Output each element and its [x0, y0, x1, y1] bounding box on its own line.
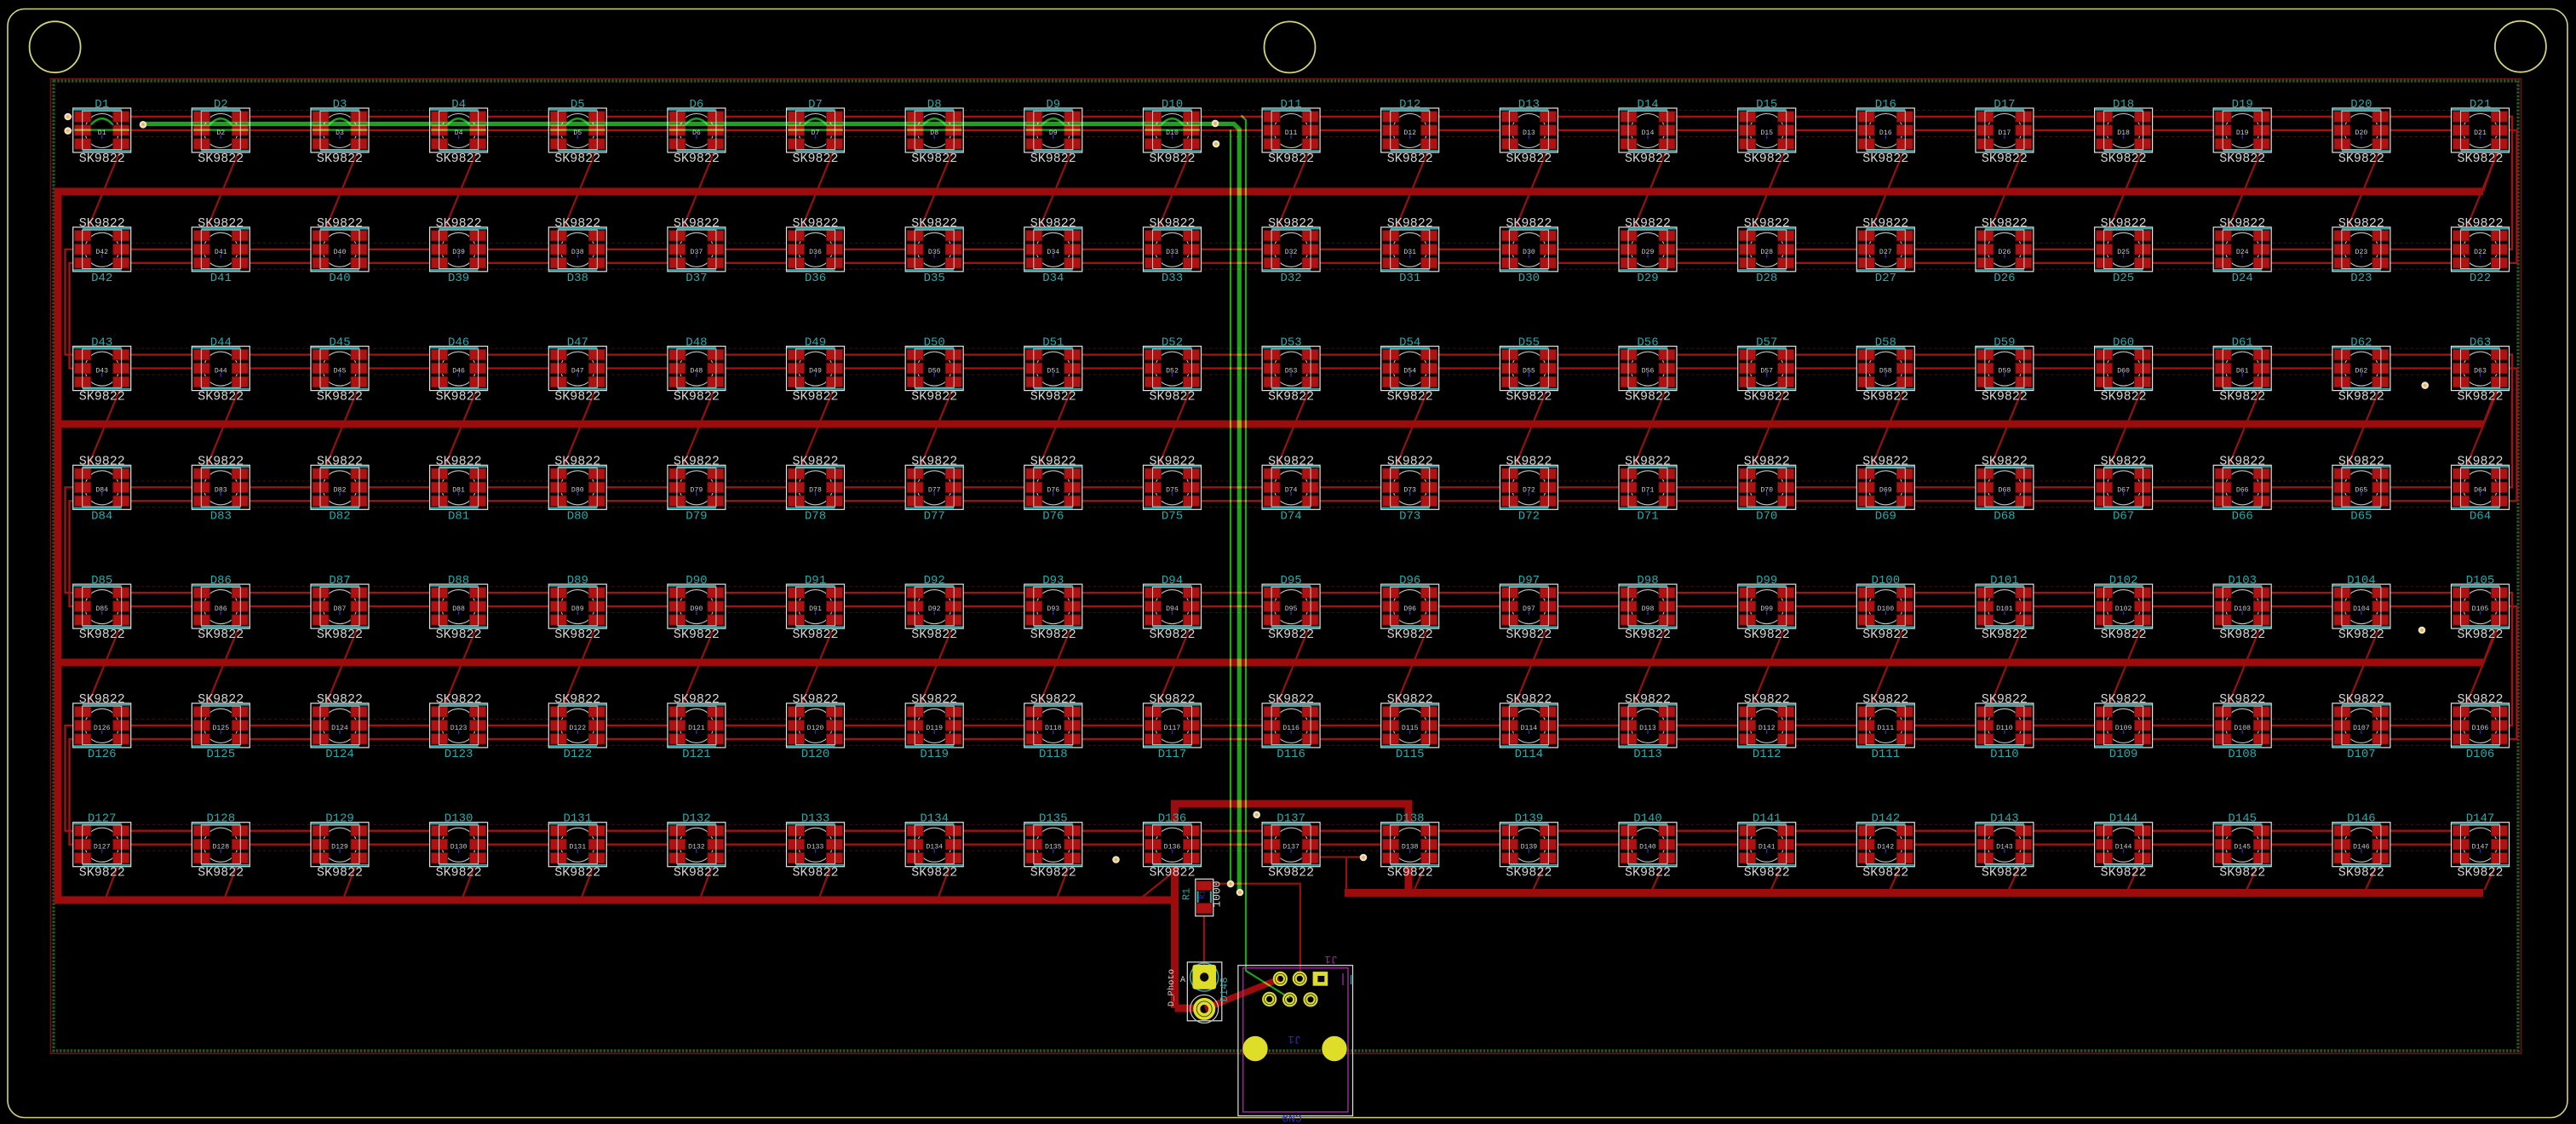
svg-text:D103: D103: [2228, 574, 2257, 588]
svg-text:SK9822: SK9822: [2101, 866, 2147, 880]
svg-text:SK9822: SK9822: [436, 628, 482, 642]
svg-text:D90: D90: [686, 574, 707, 588]
svg-text:SK9822: SK9822: [792, 454, 838, 468]
svg-text:D120: D120: [801, 748, 830, 761]
svg-text:D10: D10: [1162, 98, 1183, 112]
svg-text:D146: D146: [2347, 812, 2376, 826]
svg-text:SK9822: SK9822: [1149, 866, 1195, 880]
svg-text:SK9822: SK9822: [198, 390, 244, 404]
svg-text:D37: D37: [686, 272, 707, 285]
svg-text:D31: D31: [1399, 272, 1420, 285]
svg-text:D125: D125: [206, 748, 235, 761]
svg-text:D124: D124: [325, 748, 354, 761]
svg-text:D74: D74: [1280, 509, 1301, 523]
svg-text:SK9822: SK9822: [674, 628, 720, 642]
svg-text:D58: D58: [1875, 336, 1896, 350]
svg-text:SK9822: SK9822: [1149, 152, 1195, 166]
svg-text:SK9822: SK9822: [2338, 866, 2384, 880]
svg-text:SK9822: SK9822: [436, 390, 482, 404]
svg-text:SK9822: SK9822: [79, 454, 125, 468]
svg-text:D28: D28: [1756, 272, 1777, 285]
svg-text:SK9822: SK9822: [198, 866, 244, 880]
svg-text:SK9822: SK9822: [436, 216, 482, 231]
svg-text:SK9822: SK9822: [1030, 628, 1076, 642]
svg-text:SK9822: SK9822: [1387, 390, 1433, 404]
svg-text:D148: D148: [1219, 978, 1231, 1002]
svg-text:SK9822: SK9822: [1625, 628, 1671, 642]
svg-text:D86: D86: [210, 574, 232, 588]
svg-text:D107: D107: [2347, 748, 2376, 761]
svg-text:D112: D112: [1753, 748, 1781, 761]
svg-text:SK9822: SK9822: [1387, 152, 1433, 166]
svg-text:D87: D87: [329, 574, 350, 588]
svg-text:D80: D80: [567, 509, 588, 523]
svg-text:D83: D83: [210, 509, 232, 523]
svg-text:D132: D132: [682, 812, 711, 826]
svg-text:D59: D59: [1994, 336, 2015, 350]
svg-text:D144: D144: [2109, 812, 2138, 826]
svg-text:CN9: CN9: [1282, 1111, 1301, 1124]
svg-text:A: A: [1180, 976, 1185, 985]
svg-text:SK9822: SK9822: [317, 152, 363, 166]
svg-text:D49: D49: [805, 336, 826, 350]
svg-text:SK9822: SK9822: [1268, 390, 1314, 404]
svg-text:SK9822: SK9822: [1862, 692, 1908, 707]
svg-text:SK9822: SK9822: [2457, 216, 2503, 231]
svg-text:D101: D101: [1990, 574, 2019, 588]
svg-text:SK9822: SK9822: [792, 692, 838, 707]
svg-text:D61: D61: [2232, 336, 2253, 350]
svg-text:SK9822: SK9822: [1744, 152, 1790, 166]
svg-text:SK9822: SK9822: [792, 152, 838, 166]
svg-text:SK9822: SK9822: [317, 216, 363, 231]
svg-text:D140: D140: [1633, 812, 1662, 826]
svg-text:SK9822: SK9822: [2338, 454, 2384, 468]
svg-text:SK9822: SK9822: [2101, 692, 2147, 707]
svg-text:SK9822: SK9822: [2457, 628, 2503, 642]
svg-text:SK9822: SK9822: [1268, 866, 1314, 880]
svg-text:D54: D54: [1399, 336, 1420, 350]
svg-text:SK9822: SK9822: [1030, 692, 1076, 707]
svg-text:D3: D3: [333, 98, 347, 112]
svg-text:SK9822: SK9822: [911, 454, 957, 468]
svg-text:SK9822: SK9822: [1149, 216, 1195, 231]
svg-text:SK9822: SK9822: [317, 628, 363, 642]
svg-text:D119: D119: [920, 748, 949, 761]
svg-text:SK9822: SK9822: [792, 628, 838, 642]
svg-text:SK9822: SK9822: [1268, 216, 1314, 231]
svg-text:D121: D121: [682, 748, 711, 761]
svg-text:D19: D19: [2232, 98, 2253, 112]
svg-text:SK9822: SK9822: [911, 216, 957, 231]
svg-text:SK9822: SK9822: [436, 866, 482, 880]
svg-text:SK9822: SK9822: [674, 866, 720, 880]
svg-text:D27: D27: [1875, 272, 1896, 285]
svg-text:SK9822: SK9822: [2457, 866, 2503, 880]
svg-text:D127: D127: [88, 812, 117, 826]
svg-text:SK9822: SK9822: [1625, 454, 1671, 468]
svg-text:SK9822: SK9822: [1268, 628, 1314, 642]
svg-text:D51: D51: [1042, 336, 1064, 350]
svg-text:D134: D134: [920, 812, 949, 826]
svg-text:D7: D7: [808, 98, 823, 112]
svg-text:SK9822: SK9822: [436, 692, 482, 707]
svg-text:D117: D117: [1158, 748, 1187, 761]
svg-text:SK9822: SK9822: [1982, 454, 2028, 468]
svg-text:D78: D78: [805, 509, 826, 523]
svg-text:D53: D53: [1280, 336, 1301, 350]
svg-text:SK9822: SK9822: [1506, 216, 1552, 231]
svg-text:SK9822: SK9822: [674, 390, 720, 404]
svg-text:D1: D1: [95, 98, 109, 112]
svg-text:D135: D135: [1039, 812, 1068, 826]
svg-text:D139: D139: [1515, 812, 1544, 826]
svg-text:D25: D25: [2113, 272, 2134, 285]
svg-text:D60: D60: [2113, 336, 2134, 350]
svg-text:SK9822: SK9822: [674, 216, 720, 231]
svg-text:SK9822: SK9822: [2457, 454, 2503, 468]
svg-text:SK9822: SK9822: [674, 152, 720, 166]
svg-text:D96: D96: [1399, 574, 1420, 588]
svg-text:D99: D99: [1756, 574, 1777, 588]
svg-text:SK9822: SK9822: [2101, 152, 2147, 166]
svg-text:SK9822: SK9822: [1030, 390, 1076, 404]
svg-text:SK9822: SK9822: [1387, 216, 1433, 231]
svg-text:SK9822: SK9822: [1982, 692, 2028, 707]
svg-text:SK9822: SK9822: [79, 628, 125, 642]
svg-text:D141: D141: [1753, 812, 1781, 826]
svg-text:SK9822: SK9822: [1862, 628, 1908, 642]
svg-text:D20: D20: [2350, 98, 2372, 112]
svg-text:D137: D137: [1277, 812, 1305, 826]
svg-text:SK9822: SK9822: [792, 216, 838, 231]
svg-text:R1: R1: [1181, 888, 1193, 900]
svg-text:SK9822: SK9822: [554, 628, 600, 642]
svg-text:D129: D129: [325, 812, 354, 826]
svg-text:D36: D36: [805, 272, 826, 285]
svg-text:SK9822: SK9822: [911, 628, 957, 642]
svg-text:SK9822: SK9822: [2101, 628, 2147, 642]
svg-text:D108: D108: [2228, 748, 2257, 761]
svg-text:SK9822: SK9822: [554, 216, 600, 231]
svg-text:D13: D13: [1518, 98, 1540, 112]
svg-text:SK9822: SK9822: [198, 692, 244, 707]
svg-text:D63: D63: [2470, 336, 2491, 350]
svg-text:D21: D21: [2470, 98, 2491, 112]
svg-text:SK9822: SK9822: [1268, 692, 1314, 707]
svg-text:D24: D24: [2232, 272, 2253, 285]
svg-text:D126: D126: [88, 748, 117, 761]
svg-text:SK9822: SK9822: [1149, 628, 1195, 642]
svg-text:SK9822: SK9822: [911, 692, 957, 707]
svg-text:SK9822: SK9822: [2338, 152, 2384, 166]
svg-text:D105: D105: [2466, 574, 2495, 588]
svg-text:D113: D113: [1633, 748, 1662, 761]
svg-text:SK9822: SK9822: [911, 866, 957, 880]
svg-text:D65: D65: [2350, 509, 2372, 523]
svg-text:SK9822: SK9822: [792, 390, 838, 404]
svg-text:D41: D41: [210, 272, 232, 285]
svg-text:SK9822: SK9822: [79, 390, 125, 404]
svg-text:SK9822: SK9822: [1506, 866, 1552, 880]
svg-text:D111: D111: [1871, 748, 1900, 761]
svg-text:SK9822: SK9822: [79, 692, 125, 707]
svg-text:SK9822: SK9822: [2457, 692, 2503, 707]
svg-text:D64: D64: [2470, 509, 2491, 523]
svg-text:SK9822: SK9822: [1149, 390, 1195, 404]
svg-text:SK9822: SK9822: [2219, 390, 2265, 404]
svg-text:SK9822: SK9822: [1149, 454, 1195, 468]
svg-text:D8: D8: [927, 98, 942, 112]
svg-text:J1: J1: [1324, 953, 1338, 966]
svg-text:D38: D38: [567, 272, 588, 285]
svg-text:D133: D133: [801, 812, 830, 826]
svg-text:SK9822: SK9822: [1862, 390, 1908, 404]
svg-text:D9: D9: [1046, 98, 1060, 112]
svg-text:SK9822: SK9822: [2219, 454, 2265, 468]
svg-text:D136: D136: [1158, 812, 1187, 826]
svg-text:SK9822: SK9822: [554, 866, 600, 880]
svg-text:SK9822: SK9822: [317, 866, 363, 880]
svg-text:D47: D47: [567, 336, 588, 350]
svg-text:R1: R1: [1199, 890, 1208, 899]
svg-text:SK9822: SK9822: [1506, 152, 1552, 166]
svg-text:SK9822: SK9822: [436, 152, 482, 166]
svg-text:D88: D88: [448, 574, 469, 588]
svg-text:D26: D26: [1994, 272, 2015, 285]
svg-text:D32: D32: [1280, 272, 1301, 285]
svg-text:D30: D30: [1518, 272, 1540, 285]
svg-text:SK9822: SK9822: [1030, 454, 1076, 468]
svg-text:D95: D95: [1280, 574, 1301, 588]
svg-text:SK9822: SK9822: [1862, 866, 1908, 880]
svg-text:SK9822: SK9822: [1862, 216, 1908, 231]
svg-text:D23: D23: [2350, 272, 2372, 285]
svg-text:SK9822: SK9822: [198, 454, 244, 468]
svg-text:D4: D4: [451, 98, 466, 112]
svg-text:D57: D57: [1756, 336, 1777, 350]
svg-text:D93: D93: [1042, 574, 1064, 588]
svg-text:D18: D18: [2113, 98, 2134, 112]
svg-text:SK9822: SK9822: [1744, 216, 1790, 231]
svg-text:SK9822: SK9822: [1030, 216, 1076, 231]
svg-text:SK9822: SK9822: [1862, 454, 1908, 468]
svg-text:SK9822: SK9822: [1982, 390, 2028, 404]
svg-text:SK9822: SK9822: [1982, 216, 2028, 231]
svg-text:SK9822: SK9822: [1268, 454, 1314, 468]
svg-text:D94: D94: [1162, 574, 1183, 588]
svg-text:SK9822: SK9822: [198, 152, 244, 166]
svg-text:SK9822: SK9822: [554, 152, 600, 166]
svg-text:D142: D142: [1871, 812, 1900, 826]
svg-text:SK9822: SK9822: [911, 390, 957, 404]
svg-text:SK9822: SK9822: [317, 454, 363, 468]
svg-text:SK9822: SK9822: [1744, 866, 1790, 880]
svg-text:D123: D123: [445, 748, 473, 761]
svg-text:SK9822: SK9822: [2101, 216, 2147, 231]
svg-text:SK9822: SK9822: [674, 454, 720, 468]
svg-text:D12: D12: [1399, 98, 1420, 112]
svg-text:SK9822: SK9822: [554, 390, 600, 404]
svg-text:D128: D128: [206, 812, 235, 826]
svg-text:D89: D89: [567, 574, 588, 588]
svg-text:SK9822: SK9822: [2338, 216, 2384, 231]
svg-text:SK9822: SK9822: [1387, 866, 1433, 880]
svg-text:SK9822: SK9822: [2338, 692, 2384, 707]
svg-text:D16: D16: [1875, 98, 1896, 112]
svg-text:SK9822: SK9822: [2101, 454, 2147, 468]
svg-text:SK9822: SK9822: [792, 866, 838, 880]
svg-text:D39: D39: [448, 272, 469, 285]
svg-text:D43: D43: [91, 336, 112, 350]
svg-text:D42: D42: [91, 272, 112, 285]
svg-text:D69: D69: [1875, 509, 1896, 523]
svg-text:D6: D6: [689, 98, 703, 112]
svg-text:D70: D70: [1756, 509, 1777, 523]
svg-text:SK9822: SK9822: [1625, 866, 1671, 880]
svg-text:SK9822: SK9822: [1744, 390, 1790, 404]
svg-text:D35: D35: [924, 272, 945, 285]
svg-text:SK9822: SK9822: [2219, 866, 2265, 880]
svg-text:D17: D17: [1994, 98, 2015, 112]
svg-text:SK9822: SK9822: [1982, 628, 2028, 642]
svg-text:SK9822: SK9822: [1387, 454, 1433, 468]
svg-text:D118: D118: [1039, 748, 1068, 761]
svg-text:SK9822: SK9822: [2219, 216, 2265, 231]
svg-text:SK9822: SK9822: [1744, 692, 1790, 707]
svg-text:D75: D75: [1162, 509, 1183, 523]
svg-text:SK9822: SK9822: [674, 692, 720, 707]
svg-text:D116: D116: [1277, 748, 1305, 761]
svg-text:D122: D122: [563, 748, 592, 761]
svg-text:SK9822: SK9822: [1506, 454, 1552, 468]
svg-text:D14: D14: [1637, 98, 1658, 112]
svg-text:D102: D102: [2109, 574, 2138, 588]
svg-text:SK9822: SK9822: [317, 692, 363, 707]
svg-text:D62: D62: [2350, 336, 2372, 350]
svg-text:D106: D106: [2466, 748, 2495, 761]
svg-text:SK9822: SK9822: [1625, 216, 1671, 231]
svg-text:D84: D84: [91, 509, 112, 523]
svg-text:D100: D100: [1871, 574, 1900, 588]
svg-text:SK9822: SK9822: [436, 454, 482, 468]
svg-text:SK9822: SK9822: [1506, 390, 1552, 404]
svg-text:SK9822: SK9822: [198, 628, 244, 642]
svg-text:SK9822: SK9822: [79, 866, 125, 880]
svg-text:D109: D109: [2109, 748, 2138, 761]
svg-text:D145: D145: [2228, 812, 2257, 826]
svg-text:SK9822: SK9822: [2219, 152, 2265, 166]
svg-text:SK9822: SK9822: [2338, 628, 2384, 642]
svg-text:SK9822: SK9822: [1030, 152, 1076, 166]
svg-text:D_Photo: D_Photo: [1167, 969, 1177, 1006]
svg-text:SK9822: SK9822: [1387, 692, 1433, 707]
svg-text:D147: D147: [2466, 812, 2495, 826]
svg-text:D138: D138: [1396, 812, 1425, 826]
svg-text:J1: J1: [1288, 1033, 1301, 1046]
svg-text:SK9822: SK9822: [1625, 692, 1671, 707]
svg-text:D72: D72: [1518, 509, 1540, 523]
svg-text:D29: D29: [1637, 272, 1658, 285]
svg-text:SK9822: SK9822: [554, 692, 600, 707]
svg-text:D55: D55: [1518, 336, 1540, 350]
svg-text:SK9822: SK9822: [1506, 628, 1552, 642]
svg-text:D104: D104: [2347, 574, 2376, 588]
svg-text:1000: 1000: [1211, 880, 1224, 907]
svg-text:D130: D130: [445, 812, 473, 826]
svg-text:D92: D92: [924, 574, 945, 588]
svg-text:D79: D79: [686, 509, 707, 523]
svg-text:SK9822: SK9822: [2219, 628, 2265, 642]
svg-text:D67: D67: [2113, 509, 2134, 523]
svg-text:D68: D68: [1994, 509, 2015, 523]
svg-text:SK9822: SK9822: [1744, 454, 1790, 468]
svg-text:D34: D34: [1042, 272, 1064, 285]
svg-text:SK9822: SK9822: [79, 152, 125, 166]
svg-text:D81: D81: [448, 509, 469, 523]
svg-text:SK9822: SK9822: [1982, 152, 2028, 166]
svg-text:D115: D115: [1396, 748, 1425, 761]
svg-text:SK9822: SK9822: [1268, 152, 1314, 166]
svg-text:SK9822: SK9822: [2101, 390, 2147, 404]
svg-text:SK9822: SK9822: [317, 390, 363, 404]
svg-text:SK9822: SK9822: [1744, 628, 1790, 642]
svg-text:SK9822: SK9822: [1149, 692, 1195, 707]
svg-text:D11: D11: [1280, 98, 1301, 112]
svg-text:D85: D85: [91, 574, 112, 588]
svg-text:D97: D97: [1518, 574, 1540, 588]
svg-text:D143: D143: [1990, 812, 2019, 826]
svg-text:SK9822: SK9822: [2219, 692, 2265, 707]
svg-text:SK9822: SK9822: [2457, 390, 2503, 404]
svg-text:SK9822: SK9822: [1387, 628, 1433, 642]
svg-text:SK9822: SK9822: [2338, 390, 2384, 404]
svg-text:D40: D40: [329, 272, 350, 285]
svg-text:D33: D33: [1162, 272, 1183, 285]
svg-text:SK9822: SK9822: [1625, 390, 1671, 404]
svg-text:D5: D5: [571, 98, 585, 112]
svg-text:SK9822: SK9822: [911, 152, 957, 166]
svg-text:D46: D46: [448, 336, 469, 350]
svg-text:SK9822: SK9822: [1862, 152, 1908, 166]
svg-text:SK9822: SK9822: [1506, 692, 1552, 707]
svg-text:D50: D50: [924, 336, 945, 350]
svg-text:D131: D131: [563, 812, 592, 826]
svg-text:SK9822: SK9822: [1625, 152, 1671, 166]
svg-text:D52: D52: [1162, 336, 1183, 350]
svg-text:D45: D45: [329, 336, 350, 350]
svg-text:SK9822: SK9822: [198, 216, 244, 231]
svg-text:D22: D22: [2470, 272, 2491, 285]
svg-text:D2: D2: [214, 98, 228, 112]
svg-text:D91: D91: [805, 574, 826, 588]
svg-text:SK9822: SK9822: [1030, 866, 1076, 880]
svg-text:D77: D77: [924, 509, 945, 523]
svg-text:SK9822: SK9822: [554, 454, 600, 468]
svg-text:D73: D73: [1399, 509, 1420, 523]
svg-text:D76: D76: [1042, 509, 1064, 523]
svg-text:D114: D114: [1515, 748, 1544, 761]
svg-text:SK9822: SK9822: [79, 216, 125, 231]
svg-text:SK9822: SK9822: [1982, 866, 2028, 880]
svg-text:D44: D44: [210, 336, 232, 350]
svg-text:D98: D98: [1637, 574, 1658, 588]
svg-text:D56: D56: [1637, 336, 1658, 350]
svg-text:SK9822: SK9822: [2457, 152, 2503, 166]
svg-text:D48: D48: [686, 336, 707, 350]
svg-text:D82: D82: [329, 509, 350, 523]
svg-text:D71: D71: [1637, 509, 1658, 523]
